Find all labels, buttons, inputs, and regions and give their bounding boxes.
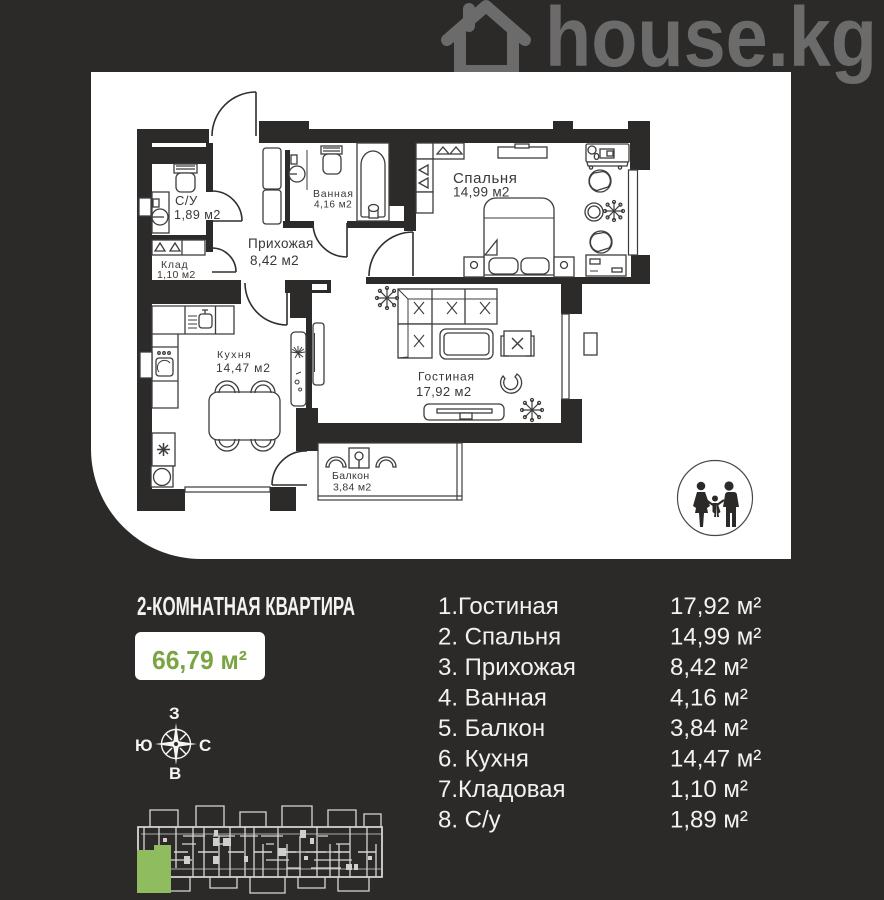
svg-text:1,10 м²: 1,10 м² (670, 776, 748, 803)
svg-text:house.kg: house.kg (545, 0, 877, 84)
svg-text:Ванная: Ванная (313, 188, 354, 200)
svg-text:Кухня: Кухня (217, 349, 252, 361)
svg-text:4,16 м2: 4,16 м2 (314, 200, 352, 211)
svg-text:8,42 м2: 8,42 м2 (250, 253, 299, 268)
svg-text:6. Кухня: 6. Кухня (438, 746, 529, 773)
svg-text:7.Кладовая: 7.Кладовая (438, 776, 566, 803)
svg-text:1.Гостиная: 1.Гостиная (438, 593, 559, 620)
svg-text:3,84 м²: 3,84 м² (670, 715, 748, 742)
svg-text:З: З (169, 704, 180, 723)
svg-text:14,47 м2: 14,47 м2 (216, 361, 271, 375)
svg-text:1,89 м2: 1,89 м2 (174, 208, 221, 222)
svg-text:Балкон: Балкон (332, 470, 370, 482)
svg-text:С/У: С/У (175, 193, 198, 208)
svg-text:3,84 м2: 3,84 м2 (333, 482, 372, 494)
svg-text:4. Ванная: 4. Ванная (438, 685, 547, 712)
svg-text:66,79 м²: 66,79 м² (152, 645, 247, 675)
svg-text:8. С/у: 8. С/у (438, 807, 501, 834)
svg-text:2. Спальня: 2. Спальня (438, 624, 561, 651)
svg-text:8,42 м²: 8,42 м² (670, 654, 748, 681)
svg-text:4,16 м²: 4,16 м² (670, 685, 748, 712)
svg-text:В: В (169, 764, 181, 783)
svg-text:14,99 м2: 14,99 м2 (453, 185, 510, 200)
svg-text:1,10 м2: 1,10 м2 (157, 269, 196, 281)
svg-text:3. Прихожая: 3. Прихожая (438, 654, 576, 681)
svg-text:2-КОМНАТНАЯ КВАРТИРА: 2-КОМНАТНАЯ КВАРТИРА (137, 591, 355, 621)
svg-text:С: С (199, 736, 211, 755)
svg-text:Прихожая: Прихожая (248, 236, 314, 251)
svg-text:5. Балкон: 5. Балкон (438, 715, 545, 742)
svg-text:Гостиная: Гостиная (418, 370, 475, 384)
svg-text:14,47 м²: 14,47 м² (670, 746, 761, 773)
svg-text:Ю: Ю (135, 736, 153, 755)
svg-text:17,92 м2: 17,92 м2 (416, 384, 472, 399)
svg-text:17,92 м²: 17,92 м² (670, 593, 761, 620)
svg-text:1,89 м²: 1,89 м² (670, 807, 748, 834)
svg-text:14,99 м²: 14,99 м² (670, 624, 761, 651)
